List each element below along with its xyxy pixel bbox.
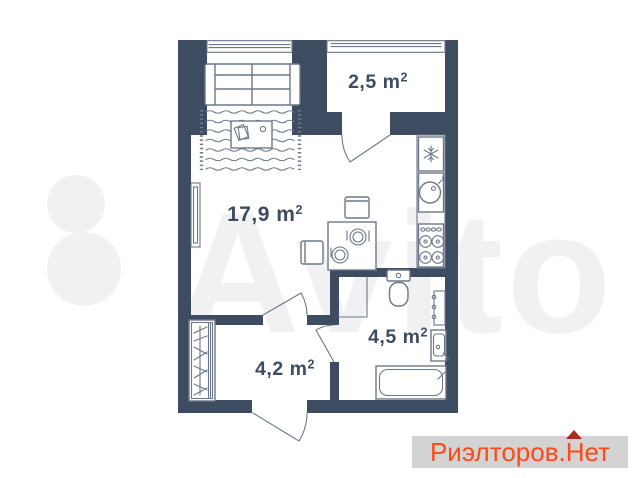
window-balcony bbox=[327, 41, 445, 53]
window-living-room bbox=[207, 41, 292, 53]
bathtub bbox=[376, 366, 446, 399]
toilet bbox=[387, 270, 410, 306]
washbasin bbox=[431, 330, 449, 361]
brand-strip: Риэлторов.Нет bbox=[412, 436, 628, 468]
watermark-dot-icon bbox=[47, 175, 105, 233]
dining-table bbox=[328, 222, 376, 270]
entrance-door bbox=[253, 413, 307, 441]
chair bbox=[345, 197, 369, 218]
brand-suffix: Нет bbox=[566, 437, 610, 468]
balcony-area-label: 2,5 m2 bbox=[348, 71, 408, 94]
brand-text: Риэлторов. bbox=[430, 437, 566, 468]
watermark-dot-icon bbox=[47, 232, 121, 306]
hallway-area-label: 4,2 m2 bbox=[255, 358, 315, 381]
living-room-area-label: 17,9 m2 bbox=[227, 203, 303, 226]
floor-plan: Avito bbox=[0, 0, 640, 478]
stove bbox=[419, 224, 444, 267]
kitchen-sink bbox=[419, 173, 446, 212]
wardrobe bbox=[189, 320, 215, 401]
coffee-table bbox=[231, 121, 272, 148]
fridge bbox=[419, 137, 444, 171]
bathroom-area-label: 4,5 m2 bbox=[368, 326, 428, 349]
chair bbox=[301, 241, 323, 264]
roof-icon bbox=[566, 430, 582, 439]
balcony-door bbox=[342, 135, 390, 162]
sofa bbox=[205, 64, 300, 105]
